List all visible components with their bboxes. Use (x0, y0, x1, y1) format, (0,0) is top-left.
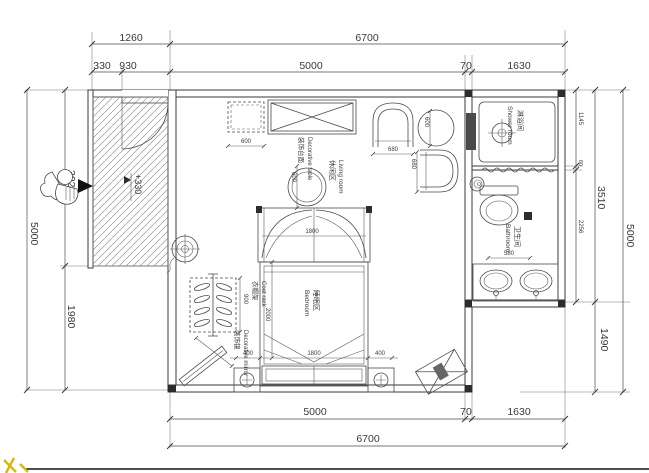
vanity (473, 264, 558, 301)
decorative-table-label-en: Decorative table (306, 137, 312, 181)
coat-rack-label-en: Coat rack (260, 281, 266, 308)
column-block (465, 385, 472, 392)
table-dim-600: 600 (290, 172, 296, 183)
sink-right (520, 270, 552, 300)
dim-1630-bottom: 1630 (507, 406, 531, 418)
side-cabinet: 600 (226, 102, 266, 148)
living-room-label: 休闲区 Living room (328, 160, 344, 194)
column-block (465, 300, 472, 307)
bedroom-label-zh: 睡眠区 (312, 290, 320, 311)
decorative-mirror-label-en: Decorative mirror (242, 330, 248, 376)
shower-label-zh: 淋浴间 (516, 110, 525, 131)
entry-porch: +330 (93, 90, 168, 266)
dim-1490-right: 1490 (598, 328, 610, 352)
dim-5000-top: 5000 (299, 60, 323, 72)
shower-room: Shower room 淋浴间 (466, 102, 555, 162)
decorative-table-label-zh: 装饰台面 (297, 137, 306, 164)
decorative-mirror-label-zh: 装饰镜 (233, 330, 242, 350)
dim-60-right: 60 (577, 160, 583, 166)
toilet (480, 186, 518, 225)
dim-2256-right: 2256 (577, 220, 583, 234)
console-table (268, 100, 356, 134)
coat-rack: 900 衣帽架 Coat rack (190, 274, 266, 336)
dim-5000-left: 5000 (28, 222, 40, 246)
dim-70-bottom: 70 (460, 406, 472, 418)
column-block (558, 300, 565, 307)
canopy-dim-1800: 1800 (305, 229, 319, 235)
living-label-en: Living room (337, 160, 344, 194)
dim-5000-right: 5000 (624, 224, 636, 248)
bed-dim-2000: 2000 (264, 308, 270, 322)
coat-rack-label-zh: 衣帽架 (251, 281, 260, 301)
shower-door (466, 113, 476, 150)
dim-1145-right: 1145 (577, 112, 583, 126)
floor-drain-icon (524, 212, 532, 220)
toilet-dim-580: 580 (504, 251, 515, 257)
dim-1260: 1260 (119, 32, 143, 44)
tea-table: 600 (418, 109, 454, 148)
bedroom-label-en: Bedroom (303, 290, 310, 316)
bathroom-label-zh: 卫生间 (513, 226, 522, 247)
decorative-round-table: 600 装饰台面 Decorative table (288, 137, 326, 210)
dim-1980-left: 1980 (65, 305, 77, 329)
bed: Bedroom 睡眠区 2000 400 1800 400 (230, 260, 398, 386)
bed-dim-1800: 1800 (307, 351, 321, 357)
nightstand-dim-400-right: 400 (375, 351, 386, 357)
column-block (168, 385, 176, 392)
armchair-dim-680v: 680 (410, 159, 416, 170)
armchair-right: 680 (410, 150, 458, 194)
porch-hatch-area (93, 97, 168, 266)
armchair-top: 680 (371, 103, 415, 156)
dim-5000-bottom: 5000 (303, 406, 327, 418)
sink-left (480, 270, 512, 300)
dim-1630-top: 1630 (507, 60, 531, 72)
level-text: +330 (133, 174, 143, 194)
dim-70-top: 70 (460, 60, 472, 72)
cabinet-dim-600: 600 (241, 139, 252, 145)
bathroom-label-en: Bathroom (504, 224, 511, 252)
shower-label-en: Shower room (506, 106, 513, 145)
dim-6700-top: 6700 (355, 32, 379, 44)
column-block (465, 90, 472, 97)
floor-plan-svg: 1260 6700 330 930 5000 70 1630 5000 70 1… (0, 0, 649, 473)
column-block (558, 90, 565, 97)
dim-930: 930 (119, 60, 137, 72)
dim-330: 330 (93, 60, 111, 72)
watermark-fragment (4, 458, 28, 473)
coat-rack-dim-900: 900 (242, 294, 248, 305)
bed-canopy: 1800 (256, 206, 372, 262)
living-label-zh: 休闲区 (328, 160, 337, 181)
floor-plan-canvas: 1260 6700 330 930 5000 70 1630 5000 70 1… (0, 0, 649, 473)
tea-table-dim-600: 600 (423, 117, 429, 128)
armchair-dim-680h: 680 (388, 147, 399, 153)
dim-6700-bottom: 6700 (356, 433, 380, 445)
toilet-dimension: 580 (486, 251, 532, 260)
person-figure (41, 170, 94, 205)
bathroom-label: Bathroom 卫生间 (504, 224, 522, 252)
dim-3510-right: 3510 (595, 186, 607, 210)
